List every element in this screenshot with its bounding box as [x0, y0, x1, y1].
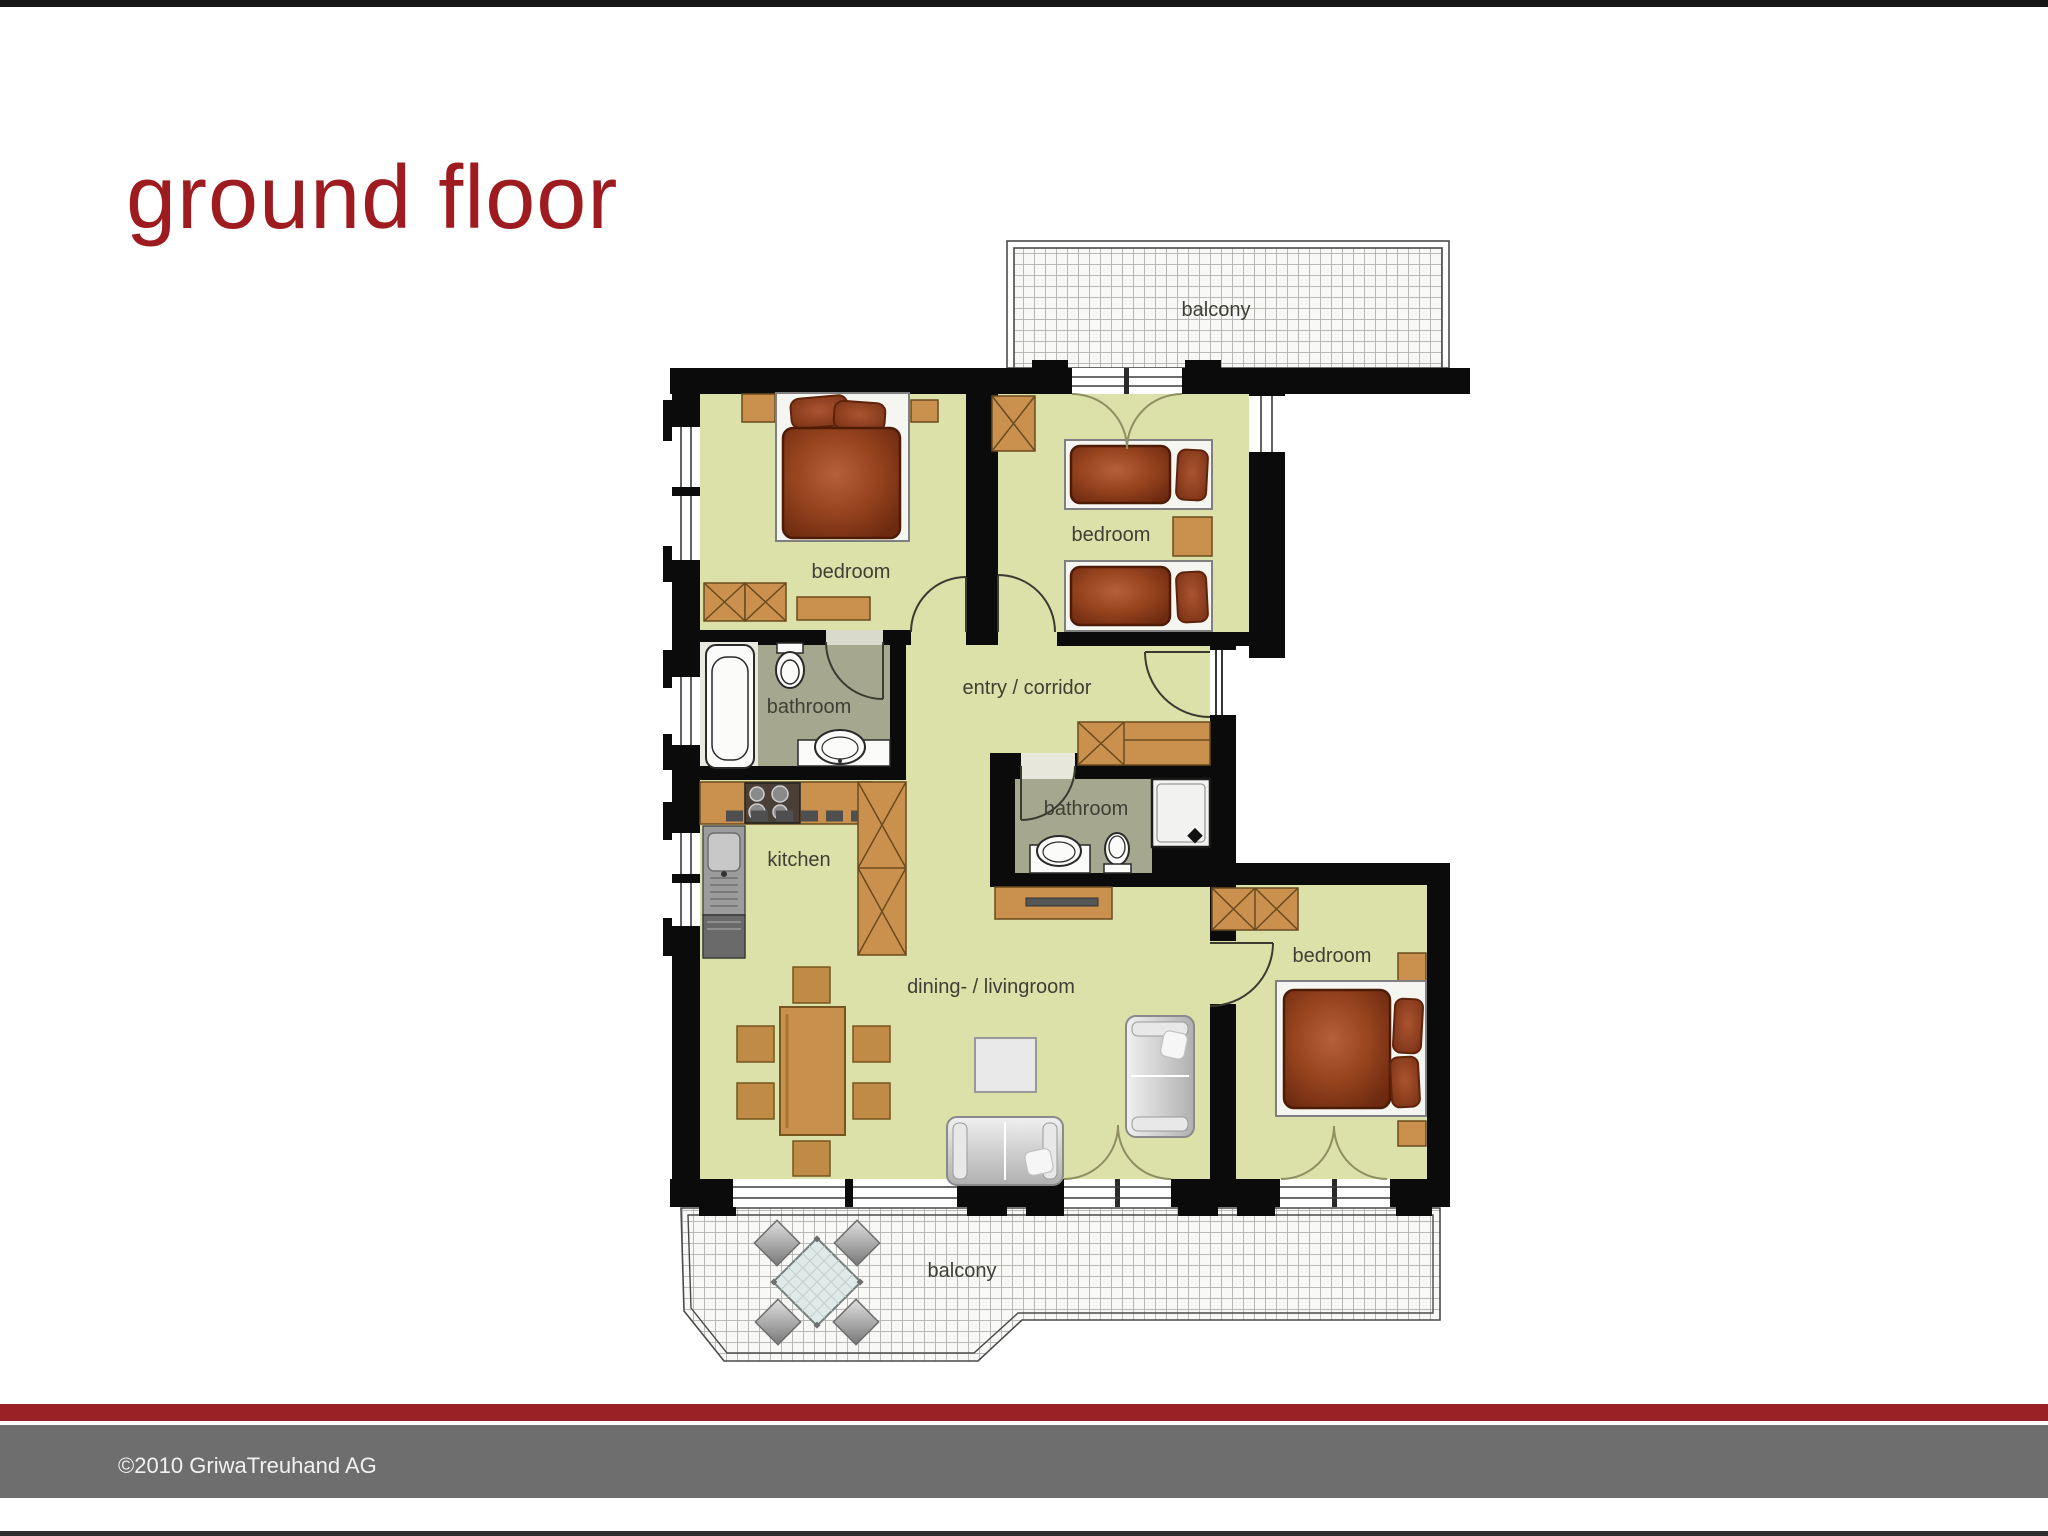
svg-text:balcony: balcony: [928, 1260, 997, 1282]
svg-text:bedroom: bedroom: [1072, 524, 1151, 546]
svg-text:bedroom: bedroom: [1293, 945, 1372, 967]
svg-text:entry / corridor: entry / corridor: [963, 677, 1092, 699]
svg-text:balcony: balcony: [1182, 299, 1251, 321]
svg-text:kitchen: kitchen: [767, 849, 830, 871]
svg-text:bedroom: bedroom: [812, 561, 891, 583]
svg-text:ground floor: ground floor: [126, 148, 618, 248]
svg-text:bathroom: bathroom: [1044, 798, 1129, 820]
svg-text:bathroom: bathroom: [767, 696, 852, 718]
svg-text:dining- / livingroom: dining- / livingroom: [907, 976, 1075, 998]
svg-text:©2010 GriwaTreuhand AG: ©2010 GriwaTreuhand AG: [118, 1453, 377, 1478]
